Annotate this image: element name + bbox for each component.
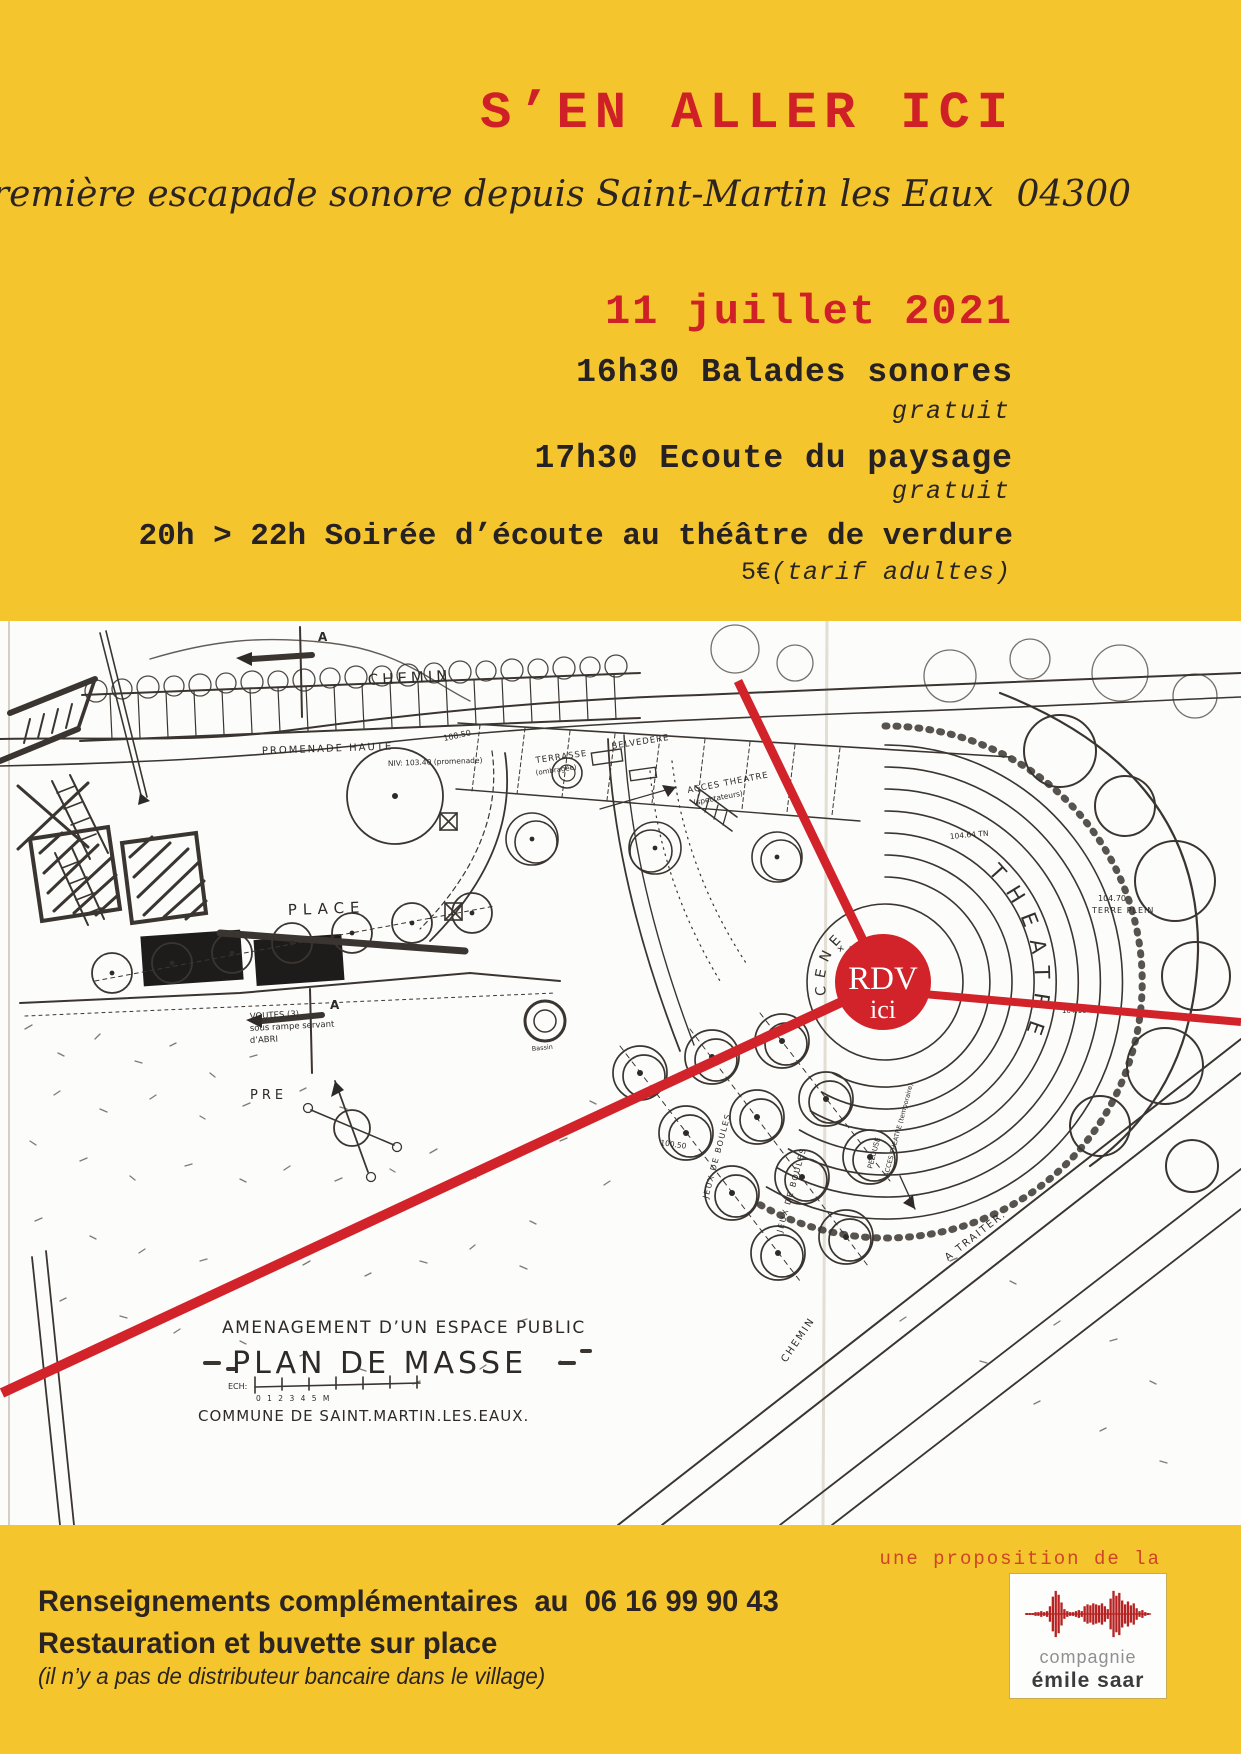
company-logo: compagnie émile saar: [1009, 1573, 1167, 1699]
price-amount: 5€: [741, 558, 771, 587]
event-date: 11 juillet 2021: [605, 288, 1013, 336]
site-plan-map: CHEMIN A A PROMENADE HAUTE NIV: 103.40 (…: [0, 621, 1241, 1525]
logo-company-name: émile saar: [1010, 1668, 1166, 1693]
bank-note: (il n’y a pas de distributeur bancaire d…: [38, 1663, 545, 1690]
label-terre-plein-2: TERRE PLEIN: [1091, 906, 1154, 915]
contact-info: Renseignements complémentaires au 06 16 …: [38, 1585, 779, 1619]
label-north-a2: A: [330, 998, 340, 1012]
label-terre-plein-1: 104.70: [1098, 894, 1126, 903]
schedule-item-3: 20h > 22h Soirée d’écoute au théâtre de …: [139, 519, 1013, 554]
price-note: (tarif adultes): [771, 558, 1011, 587]
poster: { "colors":{"yellow":"#f5c52d","red":"#d…: [0, 0, 1241, 1754]
plan-block-line2: PLAN DE MASSE: [232, 1346, 527, 1381]
plan-de-masse-drawing: CHEMIN A A PROMENADE HAUTE NIV: 103.40 (…: [0, 621, 1241, 1525]
schedule-item-2: 17h30 Ecoute du paysage: [535, 440, 1013, 477]
poster-subtitle: première escapade sonore depuis Saint-Ma…: [0, 174, 1131, 215]
schedule-note-2: gratuit: [892, 477, 1011, 506]
schedule-note-1: gratuit: [892, 397, 1011, 426]
catering-info: Restauration et buvette sur place: [38, 1627, 497, 1661]
label-place: PLACE: [288, 898, 366, 919]
plan-block-scale: 0 1 2 3 4 5 M: [256, 1394, 331, 1403]
plan-block-line3: COMMUNE DE SAINT.MARTIN.LES.EAUX.: [198, 1407, 529, 1425]
schedule-price: 5€(tarif adultes): [741, 558, 1011, 587]
label-voutes-3: d’ABRI: [250, 1035, 279, 1046]
label-north-a1: A: [318, 630, 328, 644]
plan-block-line1: AMENAGEMENT D’UN ESPACE PUBLIC: [222, 1318, 586, 1338]
label-pre: PRE: [250, 1088, 287, 1103]
rdv-badge-line1: RDV: [848, 961, 918, 997]
plan-block-ech: ECH:: [228, 1382, 247, 1391]
rdv-badge-line2: ici: [870, 995, 896, 1024]
schedule-item-1: 16h30 Balades sonores: [576, 354, 1013, 391]
waveform-icon: [1023, 1586, 1153, 1642]
proposition-text: une proposition de la: [880, 1548, 1161, 1570]
poster-title: S’EN ALLER ICI: [480, 84, 1015, 143]
logo-company-word: compagnie: [1010, 1647, 1166, 1668]
